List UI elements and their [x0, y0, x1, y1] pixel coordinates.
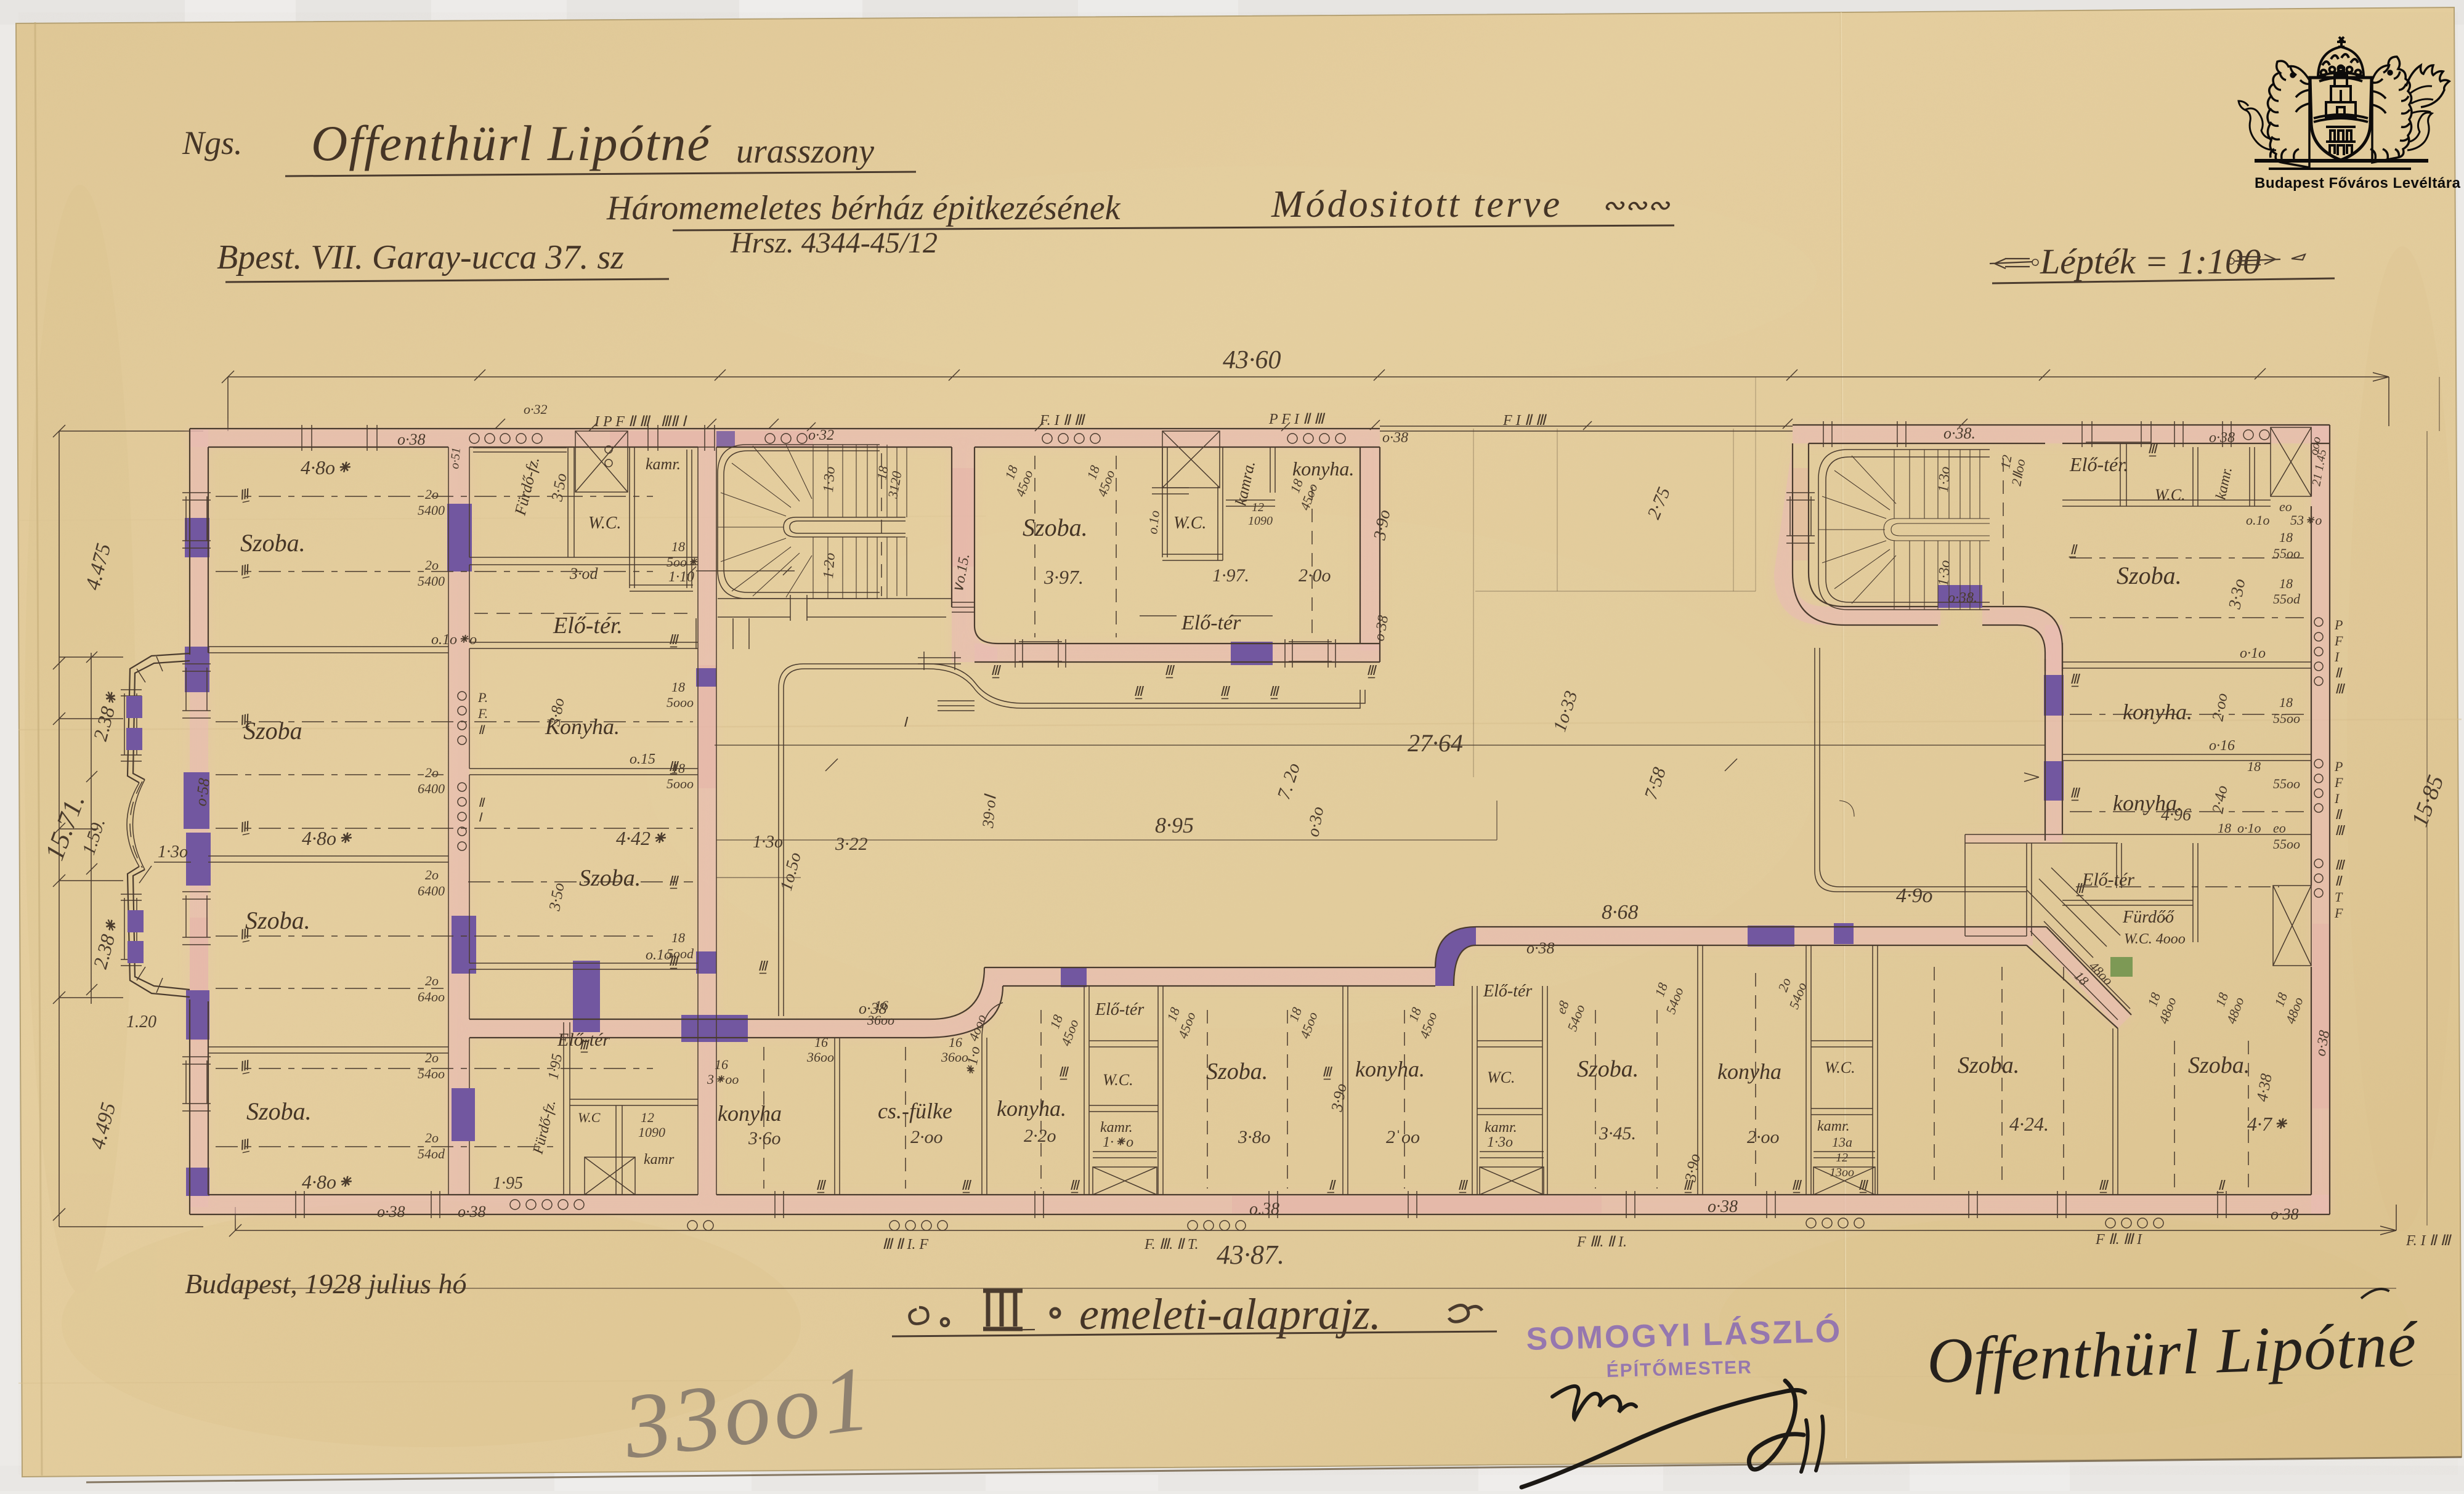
svg-text:6400: 6400: [418, 781, 445, 796]
svg-text:2o: 2o: [425, 973, 439, 988]
svg-text:3⁕oo: 3⁕oo: [707, 1072, 739, 1087]
svg-text:1·97.: 1·97.: [1212, 565, 1249, 586]
svg-text:P: P: [2334, 617, 2343, 632]
svg-text:4·24.: 4·24.: [2009, 1113, 2049, 1135]
svg-text:F.: F.: [477, 706, 488, 721]
svg-text:4·42⁕: 4·42⁕: [616, 827, 667, 849]
svg-text:54oo: 54oo: [418, 1066, 445, 1081]
svg-text:kamr.: kamr.: [1817, 1118, 1850, 1134]
svg-text:8·95: 8·95: [1155, 813, 1194, 838]
svg-text:1·3o: 1·3o: [1935, 466, 1953, 493]
svg-text:5ooo: 5ooo: [667, 776, 694, 791]
svg-text:64oo: 64oo: [418, 989, 445, 1004]
svg-text:Ⅱ̲: Ⅱ̲: [2216, 1177, 2226, 1193]
svg-text:16: 16: [715, 1057, 728, 1072]
svg-text:55oo: 55oo: [2273, 711, 2300, 726]
svg-text:konyha.: konyha.: [997, 1096, 1066, 1121]
svg-text:Budapest Főváros Levéltára: Budapest Főváros Levéltára: [2255, 175, 2461, 192]
svg-text:Háromemeletes bérház épitkezés: Háromemeletes bérház épitkezésének: [606, 189, 1121, 227]
svg-text:P F I Ⅱ Ⅲ: P F I Ⅱ Ⅲ: [1268, 411, 1326, 427]
svg-text:5400: 5400: [418, 573, 445, 589]
svg-text:1·10: 1·10: [668, 569, 694, 585]
svg-text:o·38: o·38: [458, 1203, 486, 1221]
svg-text:Hrsz. 4344-45/12: Hrsz. 4344-45/12: [730, 227, 938, 259]
svg-text:16: 16: [949, 1035, 962, 1050]
svg-text:Szoba.: Szoba.: [2117, 562, 2182, 589]
svg-text:2o: 2o: [425, 1130, 439, 1145]
svg-text:Szoba.: Szoba.: [240, 529, 306, 557]
svg-text:Elő-tér.: Elő-tér.: [2069, 453, 2128, 475]
svg-text:o·38.: o·38.: [1943, 424, 1976, 442]
svg-text:4·9o: 4·9o: [1896, 884, 1933, 907]
svg-text:Ⅱ̲: Ⅱ̲: [2069, 542, 2078, 558]
svg-text:Ngs.: Ngs.: [182, 124, 243, 161]
svg-text:W.C.: W.C.: [1825, 1059, 1855, 1076]
svg-text:2·oo: 2·oo: [1747, 1127, 1780, 1147]
svg-text:o·16: o·16: [2209, 738, 2235, 754]
svg-text:konyha.: konyha.: [1355, 1057, 1425, 1081]
svg-text:2ˈoo: 2ˈoo: [1386, 1127, 1420, 1147]
svg-text:1·3o: 1·3o: [1935, 560, 1953, 587]
svg-text:2o: 2o: [425, 867, 439, 882]
svg-text:F: F: [2334, 905, 2343, 921]
svg-text:kamr.: kamr.: [1485, 1120, 1517, 1136]
svg-text:W.C.: W.C.: [588, 514, 621, 533]
svg-text:Elő-tér: Elő-tér: [1483, 982, 1532, 1001]
svg-text:53⁕o: 53⁕o: [2290, 512, 2322, 528]
svg-text:o·1o: o·1o: [2240, 645, 2266, 661]
svg-text:∾∾∾: ∾∾∾: [1602, 190, 1671, 220]
svg-text:Szoba: Szoba: [243, 717, 302, 745]
svg-text:5400: 5400: [418, 503, 445, 518]
svg-text:1·2o: 1·2o: [821, 552, 838, 579]
svg-text:4·7⁕: 4·7⁕: [2247, 1113, 2288, 1135]
svg-text:3·22: 3·22: [835, 834, 868, 854]
svg-text:6400: 6400: [418, 883, 445, 898]
svg-text:1·3o: 1·3o: [1487, 1134, 1513, 1150]
svg-text:4·8o⁕: 4·8o⁕: [302, 827, 353, 849]
svg-text:18: 18: [2279, 576, 2293, 591]
svg-text:55od: 55od: [2273, 591, 2301, 607]
svg-text:F. I Ⅱ Ⅲ: F. I Ⅱ Ⅲ: [1039, 413, 1085, 429]
svg-text:W.C.: W.C.: [2155, 486, 2186, 504]
svg-text:12: 12: [641, 1110, 654, 1125]
svg-text:o.1o: o.1o: [1145, 510, 1162, 535]
svg-text:39·oⅠ: 39·oⅠ: [979, 793, 1000, 830]
svg-text:F. Ⅲ. Ⅱ T.: F. Ⅲ. Ⅱ T.: [1144, 1237, 1199, 1253]
svg-text:Elő-tér.: Elő-tér.: [553, 613, 623, 639]
svg-text:F I Ⅱ Ⅲ: F I Ⅱ Ⅲ: [1502, 413, 1547, 429]
svg-text:Budapest, 1928 julius hó: Budapest, 1928 julius hó: [185, 1268, 466, 1299]
svg-text:eo: eo: [2273, 820, 2286, 836]
svg-text:o·51: o·51: [448, 447, 463, 470]
svg-text:Módositott terve: Módositott terve: [1271, 184, 1562, 225]
svg-text:Szoba.: Szoba.: [1958, 1052, 2019, 1078]
svg-text:5ooo: 5ooo: [667, 695, 694, 710]
svg-text:F Ⅱ. Ⅲ I: F Ⅱ. Ⅲ I: [2095, 1232, 2142, 1248]
svg-text:I P F Ⅱ Ⅲ ⅢⅡ Ⅰ: I P F Ⅱ Ⅲ ⅢⅡ Ⅰ: [594, 414, 688, 430]
svg-text:3·od: 3·od: [569, 565, 599, 583]
svg-text:Fürdő̷ő: Fürdő̷ő: [2122, 908, 2174, 927]
svg-text:o·32: o·32: [808, 427, 834, 443]
svg-text:Bpest. VII. Garay-ucca 37. sz: Bpest. VII. Garay-ucca 37. sz: [217, 238, 624, 277]
svg-text:16: 16: [814, 1035, 828, 1050]
svg-text:o·38: o·38: [397, 430, 426, 448]
svg-text:kamr.: kamr.: [1100, 1120, 1133, 1136]
svg-text:2o: 2o: [425, 557, 439, 573]
svg-text:o.1o: o.1o: [2246, 512, 2270, 528]
svg-text:2o: 2o: [425, 487, 439, 502]
svg-text:o·38: o·38: [2271, 1205, 2299, 1223]
svg-text:43·60: 43·60: [1223, 346, 1281, 374]
svg-text:o.15: o.15: [630, 751, 655, 767]
svg-text:3·6o: 3·6o: [748, 1128, 781, 1149]
svg-text:F. I Ⅱ Ⅲ: F. I Ⅱ Ⅲ: [2405, 1233, 2452, 1249]
svg-text:18: 18: [2218, 820, 2231, 836]
svg-text:F Ⅲ. Ⅱ I.: F Ⅲ. Ⅱ I.: [1576, 1234, 1627, 1250]
svg-text:12: 12: [1836, 1151, 1848, 1165]
svg-text:2·0o: 2·0o: [1299, 565, 1331, 586]
svg-text:Szoba.: Szoba.: [246, 1097, 312, 1125]
svg-text:1090: 1090: [1248, 514, 1273, 528]
svg-text:36oo: 36oo: [867, 1012, 894, 1028]
svg-text:Elő-tér: Elő-tér: [1181, 612, 1241, 634]
svg-text:13oo: 13oo: [1830, 1166, 1854, 1179]
svg-text:F: F: [2334, 633, 2343, 648]
svg-text:4·8o⁕: 4·8o⁕: [301, 456, 352, 478]
svg-text:konyha: konyha: [718, 1101, 782, 1126]
svg-text:Szoba.: Szoba.: [1577, 1056, 1639, 1082]
svg-text:WC.: WC.: [1487, 1068, 1515, 1086]
svg-text:1·3o: 1·3o: [158, 842, 188, 862]
svg-text:Szoba.: Szoba.: [1023, 514, 1088, 541]
svg-text:kamr.: kamr.: [646, 455, 681, 473]
svg-text:P: P: [2334, 759, 2343, 774]
svg-text:o·38: o·38: [1526, 939, 1555, 957]
svg-text:W.C: W.C: [578, 1110, 601, 1125]
svg-text:ÉPÍTŐMESTER: ÉPÍTŐMESTER: [1606, 1357, 1753, 1381]
svg-text:2·oo: 2·oo: [910, 1127, 943, 1147]
svg-text:W.C. 4ooo: W.C. 4ooo: [2124, 931, 2186, 947]
svg-text:kamr: kamr: [644, 1152, 675, 1168]
svg-text:2o: 2o: [425, 1050, 439, 1065]
svg-text:konyha: konyha: [1717, 1059, 1781, 1084]
svg-text:55oo: 55oo: [2273, 776, 2300, 791]
svg-text:o·38.: o·38.: [1948, 590, 1977, 606]
svg-text:1·⁕o: 1·⁕o: [1103, 1134, 1133, 1150]
svg-text:1.20: 1.20: [126, 1012, 156, 1032]
svg-text:o·1o: o·1o: [2237, 820, 2261, 836]
svg-text:54od: 54od: [418, 1146, 445, 1161]
svg-text:3·45.: 3·45.: [1599, 1123, 1636, 1144]
svg-text:1·95: 1·95: [493, 1174, 523, 1193]
svg-text:4·8o⁕: 4·8o⁕: [302, 1171, 353, 1193]
svg-text:Ⅲ Ⅱ I. F: Ⅲ Ⅱ I. F: [882, 1237, 928, 1253]
svg-text:cs.-fülke: cs.-fülke: [878, 1099, 952, 1123]
svg-text:4·96: 4·96: [2161, 806, 2191, 825]
svg-text:Elő-tér: Elő-tér: [2081, 870, 2134, 890]
svg-text:T: T: [2335, 889, 2343, 905]
svg-text:Elő-tér: Elő-tér: [1095, 1000, 1144, 1019]
svg-text:1090: 1090: [638, 1125, 665, 1140]
svg-text:W.C.: W.C.: [1103, 1071, 1133, 1089]
svg-text:36oo: 36oo: [941, 1049, 968, 1065]
svg-text:Offenthürl Lipótné: Offenthürl Lipótné: [311, 115, 711, 171]
svg-text:18: 18: [671, 539, 685, 554]
svg-text:2o: 2o: [425, 765, 439, 780]
svg-text:o.38: o.38: [1249, 1200, 1279, 1219]
svg-text:urasszony: urasszony: [736, 132, 874, 171]
svg-text:emeleti-alaprajz.: emeleti-alaprajz.: [1079, 1290, 1381, 1339]
svg-text:13a: 13a: [1832, 1134, 1852, 1150]
svg-text:27·64: 27·64: [1408, 729, 1463, 757]
svg-text:18: 18: [2247, 759, 2261, 774]
svg-text:18: 18: [2279, 695, 2293, 710]
svg-text:36oo: 36oo: [806, 1049, 834, 1065]
svg-text:o·38: o·38: [2209, 430, 2235, 446]
svg-text:55oo: 55oo: [2273, 546, 2300, 561]
svg-text:55oo: 55oo: [2273, 836, 2300, 852]
svg-text:5oo⁕: 5oo⁕: [667, 554, 698, 570]
svg-text:o·38: o·38: [1382, 430, 1408, 446]
svg-text:o.1o⁕o: o.1o⁕o: [431, 632, 477, 648]
svg-text:o·38: o·38: [1708, 1197, 1738, 1216]
svg-text:Lépték = 1:100: Lépték = 1:100: [2040, 241, 2261, 281]
svg-text:konyha.: konyha.: [2123, 700, 2192, 724]
svg-text:16: 16: [875, 998, 888, 1013]
svg-text:Szoba.: Szoba.: [245, 906, 310, 934]
svg-text:8·68: 8·68: [1602, 901, 1639, 924]
svg-text:Szoba.: Szoba.: [2188, 1052, 2250, 1078]
svg-text:3·8o: 3·8o: [1238, 1127, 1271, 1147]
svg-text:Szoba.: Szoba.: [1206, 1059, 1268, 1084]
svg-text:o·32: o·32: [524, 402, 548, 417]
svg-text:1·3o: 1·3o: [821, 466, 838, 493]
svg-text:Ⅱ̲: Ⅱ̲: [1327, 1177, 1336, 1193]
svg-text:18: 18: [2279, 530, 2293, 545]
svg-text:12: 12: [1252, 501, 1264, 514]
svg-text:43·87.: 43·87.: [1217, 1240, 1284, 1270]
svg-text:2·2o: 2·2o: [1024, 1126, 1056, 1146]
svg-text:Szoba.: Szoba.: [579, 865, 641, 891]
svg-text:F: F: [2334, 775, 2343, 790]
svg-text:18: 18: [671, 679, 685, 695]
svg-text:W.C.: W.C.: [1173, 514, 1206, 533]
svg-text:18: 18: [671, 930, 685, 945]
svg-text:konyha.: konyha.: [1292, 458, 1354, 480]
svg-text:3·97.: 3·97.: [1044, 566, 1084, 588]
svg-text:P.: P.: [477, 690, 488, 705]
svg-text:o·38: o·38: [377, 1203, 405, 1221]
